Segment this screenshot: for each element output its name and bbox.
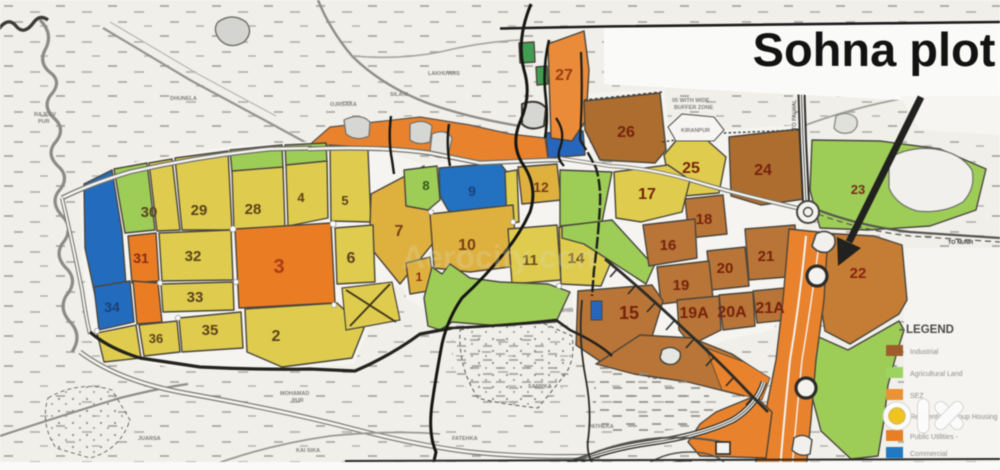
- svg-text:15: 15: [619, 303, 639, 323]
- svg-text:25: 25: [682, 160, 700, 177]
- svg-text:MOHAMAD: MOHAMAD: [280, 391, 309, 397]
- svg-text:23: 23: [851, 182, 865, 197]
- svg-text:7: 7: [395, 223, 404, 240]
- svg-text:19: 19: [673, 277, 690, 294]
- svg-text:TO PALWAL: TO PALWAL: [792, 100, 798, 130]
- svg-text:Commercial: Commercial: [910, 451, 948, 458]
- svg-text:Public Utilities -: Public Utilities -: [910, 434, 959, 441]
- svg-text:31: 31: [133, 250, 149, 266]
- svg-text:Aerocity con: Aerocity con: [402, 239, 596, 275]
- svg-text:27: 27: [555, 67, 573, 84]
- svg-text:9: 9: [468, 183, 476, 199]
- svg-text:29: 29: [191, 202, 208, 219]
- svg-text:- LEGEND: - LEGEND: [899, 324, 954, 336]
- svg-text:PUR: PUR: [38, 119, 50, 125]
- svg-text:DHUNELA: DHUNELA: [170, 96, 197, 102]
- svg-text:6: 6: [347, 250, 356, 267]
- svg-text:35: 35: [202, 322, 219, 339]
- svg-text:8: 8: [422, 178, 429, 193]
- svg-text:FATEHKA: FATEHKA: [452, 436, 478, 442]
- svg-text:30: 30: [141, 204, 158, 221]
- svg-text:SILANI: SILANI: [390, 92, 409, 98]
- svg-text:KIRANPUR: KIRANPUR: [681, 128, 710, 134]
- svg-text:36: 36: [149, 331, 163, 346]
- svg-text:33: 33: [187, 289, 204, 306]
- svg-text:PUR: PUR: [292, 398, 304, 404]
- svg-text:32: 32: [185, 248, 202, 265]
- svg-text:3: 3: [273, 256, 284, 278]
- svg-text:4: 4: [297, 190, 305, 205]
- svg-text:24: 24: [754, 162, 772, 179]
- svg-text:12: 12: [533, 179, 549, 195]
- svg-text:Sohna plot: Sohna plot: [753, 23, 996, 76]
- svg-text:21A: 21A: [755, 300, 785, 317]
- svg-text:LAKHUWAS: LAKHUWAS: [428, 71, 460, 77]
- svg-text:TO NUNH: TO NUNH: [948, 240, 973, 246]
- svg-text:16: 16: [660, 237, 677, 254]
- svg-text:20: 20: [717, 260, 734, 277]
- svg-text:05 WITH WIDE: 05 WITH WIDE: [672, 98, 710, 104]
- svg-text:Industrial: Industrial: [910, 349, 939, 356]
- svg-text:26: 26: [617, 124, 635, 141]
- svg-text:19A: 19A: [679, 305, 709, 322]
- svg-text:34: 34: [104, 299, 120, 315]
- svg-text:RAJEEV: RAJEEV: [34, 112, 56, 118]
- svg-text:28: 28: [245, 201, 262, 218]
- svg-text:20A: 20A: [717, 304, 747, 321]
- svg-text:BUFFER ZONE: BUFFER ZONE: [674, 105, 713, 111]
- svg-text:Agricultural Land: Agricultural Land: [910, 371, 963, 378]
- svg-text:5: 5: [341, 193, 348, 208]
- svg-text:JUARSA: JUARSA: [138, 436, 161, 442]
- svg-text:OJRSAKA: OJRSAKA: [330, 102, 357, 108]
- svg-text:17: 17: [638, 186, 656, 203]
- svg-text:18: 18: [696, 211, 713, 228]
- svg-text:22: 22: [850, 265, 867, 282]
- svg-text:21: 21: [758, 248, 775, 265]
- svg-text:2: 2: [272, 328, 281, 345]
- svg-text:KAI SIKA: KAI SIKA: [296, 448, 320, 454]
